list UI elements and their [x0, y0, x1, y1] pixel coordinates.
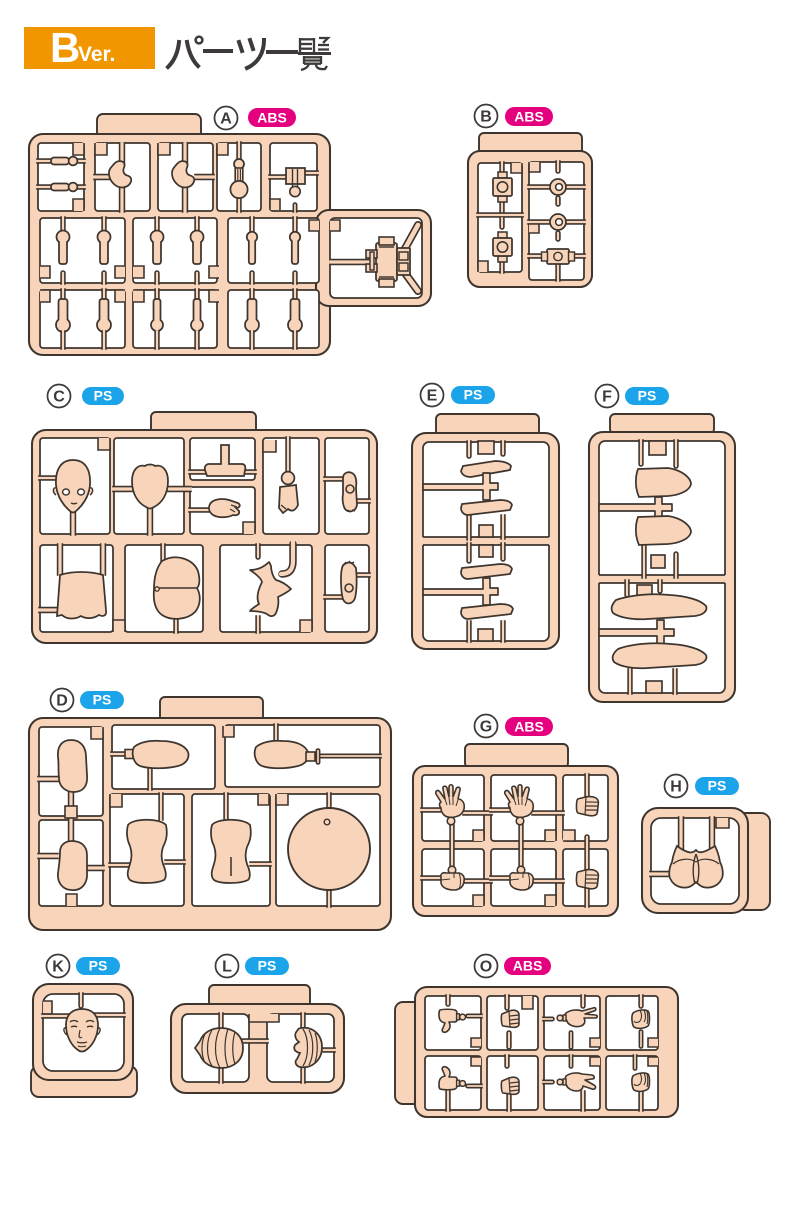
svg-text:PS: PS: [708, 778, 727, 794]
svg-text:B: B: [50, 24, 80, 71]
svg-text:ABS: ABS: [514, 719, 544, 735]
svg-text:PS: PS: [464, 387, 483, 403]
svg-text:L: L: [222, 959, 232, 976]
svg-text:PS: PS: [94, 388, 113, 404]
svg-text:PS: PS: [258, 958, 277, 974]
svg-text:G: G: [480, 719, 492, 736]
svg-text:ABS: ABS: [514, 109, 544, 125]
svg-text:B: B: [480, 109, 492, 126]
svg-text:O: O: [480, 959, 492, 976]
svg-text:PS: PS: [89, 958, 108, 974]
svg-text:K: K: [52, 959, 64, 976]
svg-text:E: E: [427, 388, 438, 405]
svg-text:F: F: [602, 389, 612, 406]
svg-text:PS: PS: [93, 692, 112, 708]
svg-text:H: H: [670, 779, 682, 796]
svg-text:PS: PS: [638, 388, 657, 404]
svg-text:ABS: ABS: [513, 958, 543, 974]
svg-text:C: C: [53, 389, 65, 406]
svg-text:Ver.: Ver.: [78, 43, 115, 66]
svg-text:D: D: [56, 693, 68, 710]
svg-text:A: A: [220, 111, 232, 128]
svg-text:ABS: ABS: [257, 110, 287, 126]
